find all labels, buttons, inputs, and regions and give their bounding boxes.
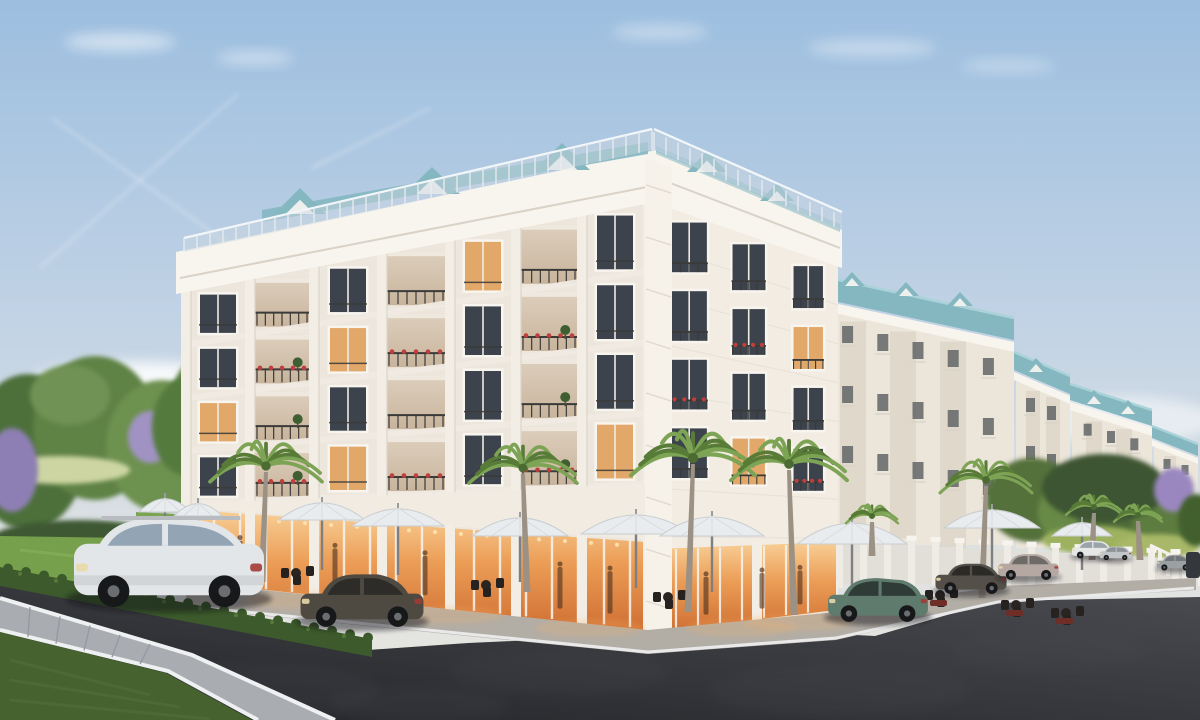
hedge-bump (3, 564, 13, 574)
flower-box (570, 333, 575, 338)
palm-crown (1091, 504, 1097, 510)
cafe-chair (665, 599, 673, 609)
window (1130, 438, 1138, 450)
taillight (921, 599, 927, 603)
window (913, 462, 924, 479)
topiary-plant (293, 357, 303, 367)
wheel-hub (322, 613, 330, 621)
person-head (704, 571, 709, 576)
cloud (808, 39, 936, 57)
hedge-highlight (234, 613, 238, 617)
flower-box (438, 349, 443, 354)
fence-post-cap (1171, 549, 1181, 554)
headlight (829, 599, 835, 603)
window (948, 350, 959, 367)
wheel-hub (219, 585, 231, 597)
balcony-recess (840, 322, 866, 529)
cafe-chair (281, 568, 289, 578)
flower-box (751, 343, 755, 347)
wheel-hub (1124, 557, 1126, 559)
shop-pillar (309, 515, 319, 597)
person-silhouette (798, 570, 803, 604)
ceiling-light (459, 532, 463, 536)
window (948, 410, 959, 427)
person-head (760, 568, 765, 573)
window (1026, 398, 1035, 412)
building-rendering (0, 0, 1200, 720)
hedge-bump (39, 570, 49, 580)
fence-post-cap (931, 537, 941, 542)
asphalt-patch (710, 664, 970, 716)
person-silhouette (608, 571, 613, 614)
balcony-ceiling (386, 437, 446, 442)
headlight (302, 599, 310, 604)
headlight (1100, 553, 1102, 554)
taillight (414, 599, 422, 604)
wheel-hub (1009, 573, 1013, 577)
corner-pilaster (645, 157, 672, 634)
hedge-bump (21, 567, 31, 577)
window (913, 402, 924, 419)
cafe-chair (1051, 608, 1059, 618)
wheel-hub (948, 586, 952, 590)
pilaster (181, 285, 191, 510)
flower-box (682, 397, 686, 401)
palm-crown (784, 459, 794, 469)
window (877, 454, 888, 471)
window (877, 334, 888, 351)
cafe-chair (293, 575, 301, 585)
fence-post-cap (1027, 542, 1037, 547)
flower-box (535, 467, 540, 472)
corner-column (645, 157, 672, 634)
window (1164, 459, 1171, 469)
topiary-plant (293, 471, 303, 481)
window (842, 326, 853, 343)
window (1026, 446, 1035, 460)
lounge-cushion (1006, 610, 1023, 616)
flower-box (280, 366, 285, 371)
ceiling-light (303, 521, 307, 525)
flower-box (794, 479, 798, 483)
flower-box (426, 349, 431, 354)
shop-pillar (445, 524, 455, 611)
topiary-plant (560, 392, 570, 402)
window (877, 394, 888, 411)
lounge-cushion (930, 600, 947, 606)
palm-crown (869, 513, 875, 519)
pilaster (377, 246, 387, 524)
flower-box (733, 343, 737, 347)
cafe-chair (306, 566, 314, 576)
wheel-hub (108, 585, 120, 597)
flower-box (258, 366, 263, 371)
hedge-highlight (342, 634, 346, 638)
car-dark-partial (1186, 552, 1200, 578)
flower-box (390, 349, 395, 354)
flower-box (302, 479, 307, 484)
pilaster (445, 232, 455, 528)
cloud (217, 51, 293, 65)
shop-light-spill (535, 619, 645, 637)
window (842, 386, 853, 403)
flower-box (760, 343, 764, 347)
window (842, 446, 853, 463)
headlight (76, 564, 88, 572)
palm-crown (982, 476, 990, 484)
flower-box (438, 473, 443, 478)
hedge-bump (255, 612, 265, 622)
person-silhouette (760, 573, 765, 609)
flower-box (702, 397, 706, 401)
car-body (1186, 552, 1200, 578)
palm-crown (688, 453, 698, 463)
cafe-chair (1026, 598, 1034, 608)
flower-box (810, 479, 814, 483)
taillight (1129, 553, 1131, 554)
window (1107, 431, 1115, 443)
person-head (333, 543, 338, 548)
fence-post-cap (907, 536, 917, 541)
asphalt-patch (950, 630, 1150, 670)
ceiling-light (589, 541, 593, 545)
headlight (999, 566, 1003, 569)
cafe-chair (1076, 606, 1084, 616)
hedge-highlight (306, 627, 310, 631)
ceiling-light (433, 530, 437, 534)
person-head (423, 550, 428, 555)
fence-panel (915, 546, 932, 585)
person-silhouette (558, 567, 563, 609)
headlight (1072, 549, 1075, 551)
cafe-chair (653, 592, 661, 602)
pilaster (245, 272, 255, 514)
cloud (65, 33, 175, 51)
hedge-bump (363, 633, 373, 643)
window (983, 418, 994, 435)
wheel-hub (1163, 566, 1165, 568)
flower-box (426, 473, 431, 478)
asphalt-patch (450, 650, 670, 694)
hedge-highlight (270, 620, 274, 624)
wheel-hub (1044, 573, 1048, 577)
topiary-plant (560, 325, 570, 335)
flower-box (269, 366, 274, 371)
wheel-hub (1079, 554, 1082, 557)
ceiling-light (563, 539, 567, 543)
fence-post (908, 540, 915, 589)
flower-box (402, 349, 407, 354)
palm-crown (1135, 512, 1141, 518)
palm-crown (519, 464, 528, 473)
wheel-hub (846, 610, 852, 616)
cafe-chair (678, 590, 686, 600)
fence-panel (891, 544, 908, 584)
taillight (1054, 566, 1058, 569)
flower-box (258, 479, 263, 484)
person-silhouette (423, 556, 428, 595)
hedge-highlight (54, 579, 58, 583)
person-head (798, 565, 803, 570)
cafe-chair (1001, 600, 1009, 610)
window (1084, 424, 1092, 436)
person-head (238, 535, 243, 540)
flower-box (390, 473, 395, 478)
hedge-bump (237, 608, 247, 618)
wheel-hub (1105, 557, 1107, 559)
palm-crown (261, 461, 270, 470)
cafe-chair (471, 580, 479, 590)
wheel-hub (990, 586, 994, 590)
flower-box (547, 333, 552, 338)
ceiling-light (407, 528, 411, 532)
flower-box (414, 473, 419, 478)
shop-pillar (577, 533, 587, 625)
flower-box (535, 333, 540, 338)
ceiling-light (329, 523, 333, 527)
person-head (608, 566, 613, 571)
headlight (936, 578, 940, 581)
balcony-ceiling (254, 391, 310, 396)
window (913, 342, 924, 359)
topiary-plant (293, 414, 303, 424)
balcony-ceiling (520, 426, 578, 431)
cafe-chair (496, 578, 504, 588)
window (983, 358, 994, 375)
ceiling-light (615, 543, 619, 547)
flower-box (269, 479, 274, 484)
person-silhouette (704, 577, 709, 615)
flower-box (802, 479, 806, 483)
ceiling-light (537, 537, 541, 541)
flower-box (672, 397, 676, 401)
taillight (250, 564, 262, 572)
cafe-chair (483, 587, 491, 597)
flower-box (414, 349, 419, 354)
flower-box (742, 343, 746, 347)
flower-box (692, 397, 696, 401)
window (1047, 406, 1056, 420)
wheel-hub (394, 613, 402, 621)
railing-post (1150, 545, 1154, 571)
tree-canopy (30, 365, 110, 425)
hedge-bump (57, 574, 67, 584)
flower-box (302, 366, 307, 371)
fence-post-cap (1003, 540, 1013, 545)
balcony-ceiling (254, 278, 310, 283)
wheel-hub (904, 610, 910, 616)
cloud (962, 59, 1054, 73)
flower-box (280, 479, 285, 484)
lounge-cushion (1056, 618, 1073, 624)
balcony-ceiling (386, 375, 446, 380)
cloud (612, 24, 708, 40)
flower-box (524, 333, 529, 338)
fence-post-cap (955, 538, 965, 543)
hedge-bump (273, 615, 283, 625)
flower-box (402, 473, 407, 478)
hedge-highlight (18, 572, 22, 576)
person-head (558, 561, 563, 566)
flower-box (818, 479, 822, 483)
balcony-ceiling (520, 359, 578, 364)
pilaster (511, 219, 521, 533)
rendering-stage (0, 0, 1200, 720)
fence-post-cap (1051, 543, 1061, 548)
headlight (1157, 562, 1159, 564)
